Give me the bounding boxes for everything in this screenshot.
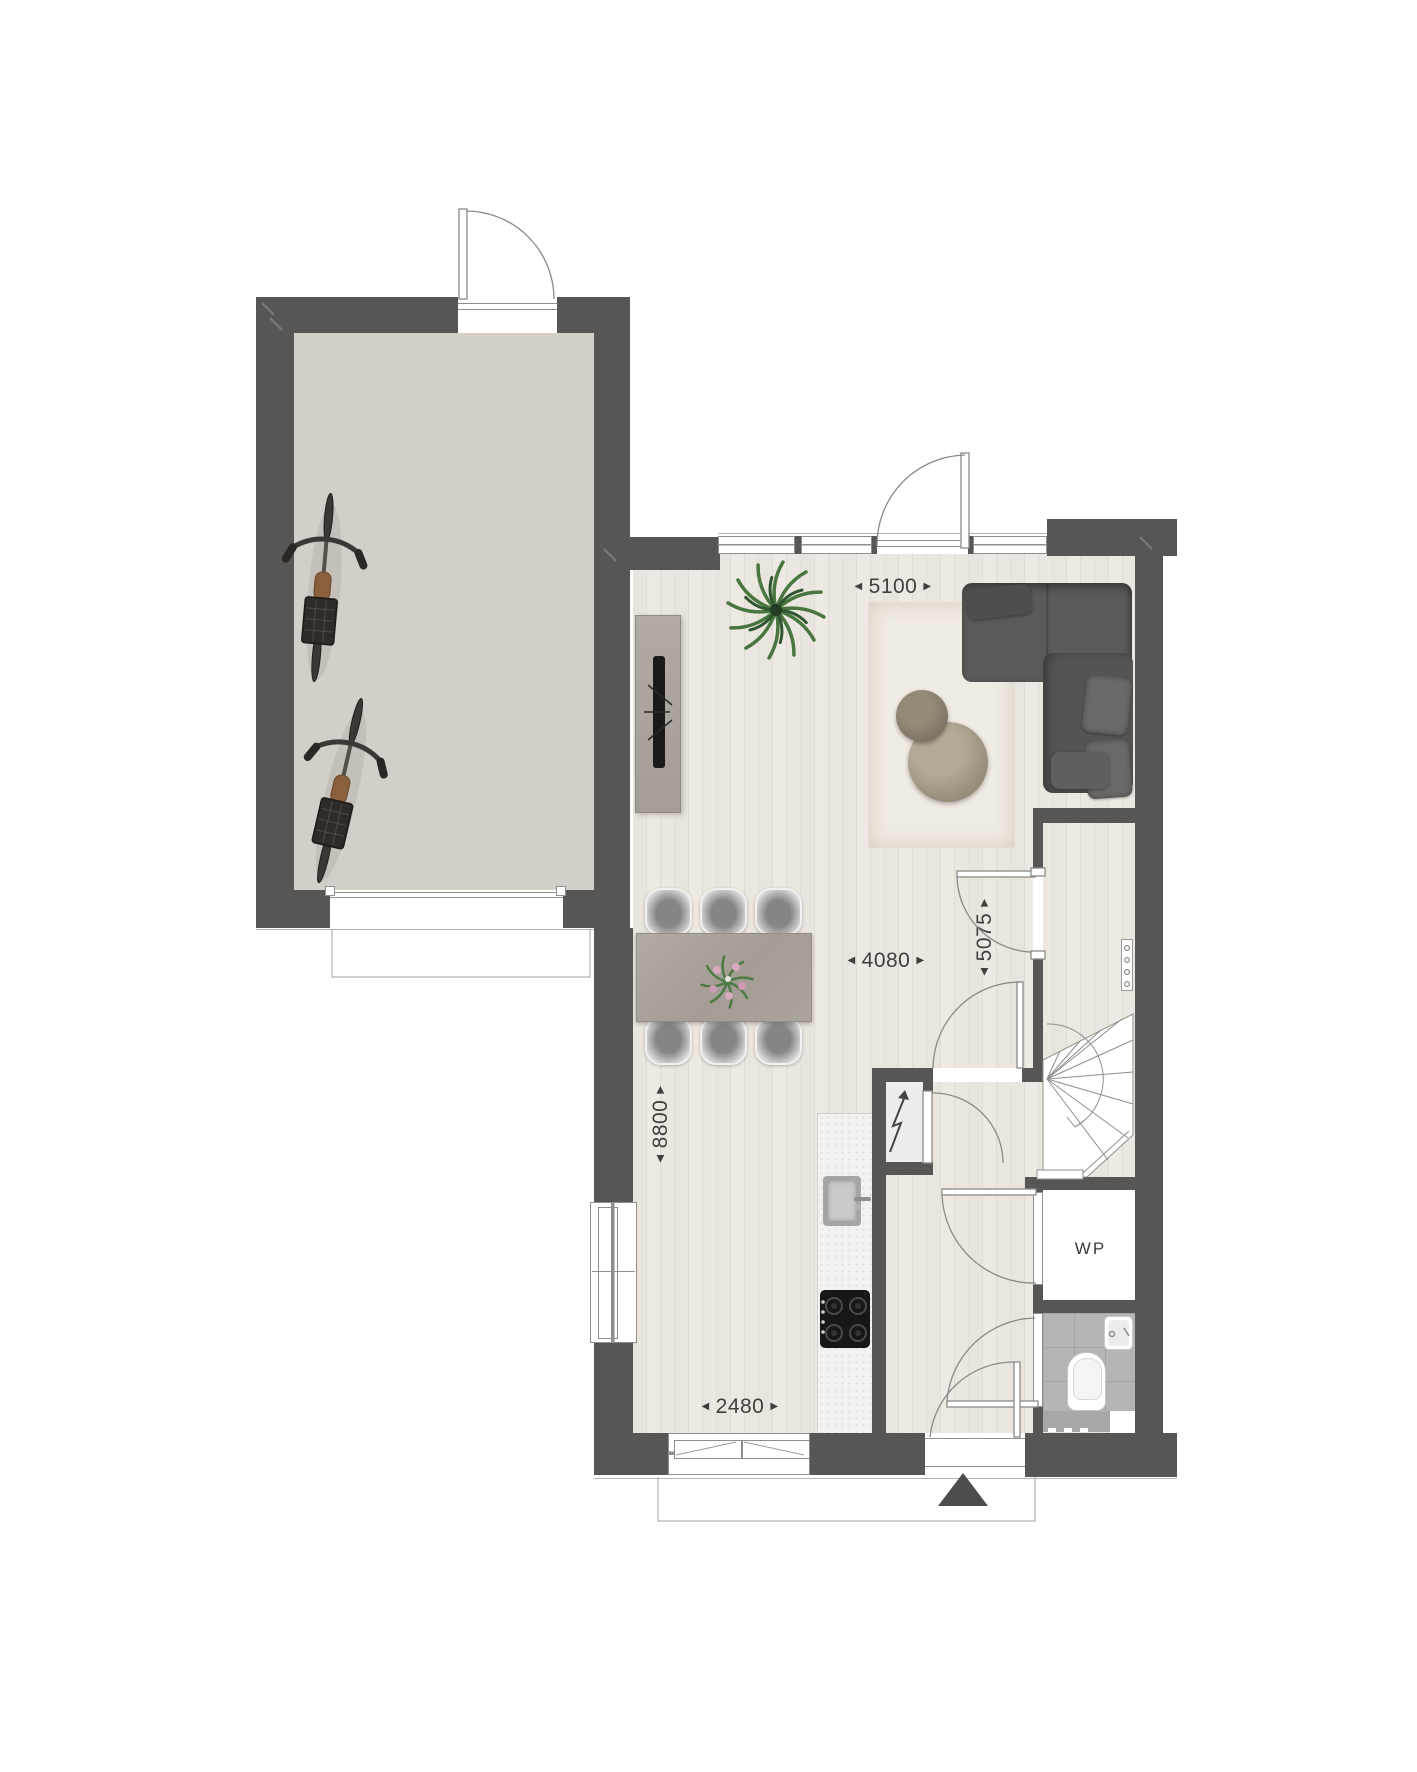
washbasin-icon <box>1104 1316 1133 1350</box>
wp-door-jamb-top <box>1033 1177 1043 1192</box>
garage-wall-top-left <box>256 297 458 333</box>
sofa-pillow-1 <box>1081 674 1133 736</box>
stairhall-wall-upper <box>1033 823 1043 875</box>
garage-door-jamb-right <box>556 886 566 896</box>
radiator-tick-1 <box>1048 1428 1056 1432</box>
garden-door-opening <box>877 536 968 554</box>
dining-chair-3 <box>755 888 802 935</box>
meter-cupboard-jamb-top <box>923 1082 933 1093</box>
entrance-threshold-2 <box>925 1466 1025 1467</box>
garage-overhead-door-opening <box>330 890 563 928</box>
hall-wall-junction <box>1033 808 1048 823</box>
dimension-8800: ◀ 8800 ▶ <box>650 1069 672 1179</box>
garage-overhead-door-line-2 <box>330 897 563 898</box>
kitchen-side-window <box>590 1202 637 1343</box>
wp-room-label: WP <box>1058 1237 1123 1261</box>
garage-door-swing <box>459 209 554 299</box>
garage-door-jamb-left <box>325 886 335 896</box>
tv-icon <box>653 656 665 768</box>
garden-door-threshold <box>877 540 968 541</box>
dimension-4080: ◀ 4080 ▶ <box>842 950 930 972</box>
house-bottom-wall-left <box>594 1433 668 1475</box>
house-left-wall-mid <box>594 928 633 1202</box>
dining-chair-2 <box>700 888 747 935</box>
house-bottom-edge <box>594 1478 1177 1479</box>
washbasin-inner <box>1108 1320 1129 1346</box>
house-bottom-wall-right <box>1025 1433 1177 1477</box>
kitchen-sink-basin <box>828 1181 856 1221</box>
dimension-5075-value: 5075 <box>973 913 997 962</box>
dimension-5100: ◀ 5100 ▶ <box>848 576 938 598</box>
dimension-8800-value: 8800 <box>649 1100 673 1149</box>
toilet-bowl <box>1073 1358 1102 1400</box>
wp-door-slab <box>1033 1192 1043 1285</box>
house-top-wall-left <box>594 537 720 570</box>
hall-living-wall-right <box>1022 1068 1048 1082</box>
dimension-2480: ◀ 2480 ▶ <box>696 1396 784 1418</box>
arrow-left-icon: ◀ <box>854 582 862 592</box>
dimension-2480-value: 2480 <box>716 1395 765 1419</box>
hall-living-door-opening <box>933 1068 1022 1082</box>
north-arrow-icon <box>938 1473 988 1506</box>
kitchen-hall-wall <box>872 1175 886 1433</box>
sofa-end-cushion <box>1051 752 1109 789</box>
arrow-up-icon: ▶ <box>656 1085 666 1093</box>
entrance-door-opening <box>925 1433 1025 1475</box>
floor-plan: ◀ 5100 ▶ ◀ 4080 ▶ ◀ 5075 ▶ ◀ 8800 ▶ ◀ 24… <box>0 0 1417 1772</box>
dining-chair-5 <box>700 1018 747 1065</box>
garage-apron-outline <box>332 930 590 977</box>
garage-door-threshold <box>458 303 557 304</box>
stairhall-wall-lower <box>1033 952 1043 1082</box>
garage-door-threshold-2 <box>458 309 557 310</box>
garden-door-threshold-2 <box>877 546 968 547</box>
arrow-right-icon: ▶ <box>916 956 924 966</box>
dining-chair-1 <box>645 888 692 935</box>
arrow-up-icon: ▶ <box>980 898 990 906</box>
meter-cupboard-floor <box>886 1082 928 1162</box>
dining-chair-4 <box>645 1018 692 1065</box>
wp-label-text: WP <box>1075 1239 1106 1259</box>
coffee-table-small <box>896 690 948 742</box>
garage-wall-left <box>256 297 294 928</box>
kitchen-side-window-sash <box>598 1207 618 1339</box>
living-window-1 <box>718 536 795 554</box>
kitchen-counter <box>817 1113 872 1433</box>
living-hall-wall <box>1048 808 1163 823</box>
living-window-3 <box>973 536 1047 554</box>
kitchen-window-sash-1 <box>674 1440 742 1459</box>
toilet-door-slab <box>1033 1313 1043 1407</box>
wp-bottom-wall <box>1043 1300 1135 1313</box>
garage-floor <box>294 333 594 890</box>
living-window-2 <box>801 536 872 554</box>
house-bottom-wall-mid <box>810 1433 925 1475</box>
radiator-tick-3 <box>1080 1428 1088 1432</box>
arrow-left-icon: ◀ <box>701 1402 709 1412</box>
garage-outer-edge <box>256 929 630 930</box>
arrow-down-icon: ◀ <box>656 1154 666 1162</box>
toilet-icon <box>1067 1352 1106 1411</box>
toilet-wall-low <box>1033 1407 1043 1433</box>
radiator-tick-2 <box>1064 1428 1072 1432</box>
kitchen-side-window-mid <box>592 1271 635 1272</box>
cooktop-icon <box>820 1290 870 1348</box>
arrow-right-icon: ▶ <box>923 582 931 592</box>
party-wall-right <box>1135 519 1163 1477</box>
dining-table <box>636 933 812 1022</box>
dimension-5100-value: 5100 <box>869 575 918 599</box>
kitchen-window-sash-2 <box>742 1440 810 1459</box>
radiator-corner <box>1110 1411 1135 1433</box>
garage-wall-bottom-left <box>256 890 330 928</box>
arrow-right-icon: ▶ <box>770 1402 778 1412</box>
meter-cupboard-wall-bottom <box>872 1162 933 1175</box>
arrow-left-icon: ◀ <box>847 956 855 966</box>
kitchen-sink <box>823 1176 861 1226</box>
dining-chair-6 <box>755 1018 802 1065</box>
arrow-down-icon: ◀ <box>980 967 990 975</box>
wp-toilet-jamb <box>1033 1285 1043 1313</box>
hall-living-wall-left <box>872 1068 933 1082</box>
ventilation-panel <box>1121 939 1133 991</box>
garage-overhead-door-line <box>330 892 563 893</box>
kitchen-window <box>668 1433 810 1475</box>
garage-wall-bottom-right <box>563 890 630 928</box>
dimension-5075: ◀ 5075 ▶ <box>974 882 996 992</box>
stairhall-door-opening <box>1033 875 1043 952</box>
entrance-threshold <box>925 1438 1025 1439</box>
garage-house-shared-wall <box>594 297 630 928</box>
dimension-4080-value: 4080 <box>862 949 911 973</box>
front-sill-line <box>718 533 1047 534</box>
